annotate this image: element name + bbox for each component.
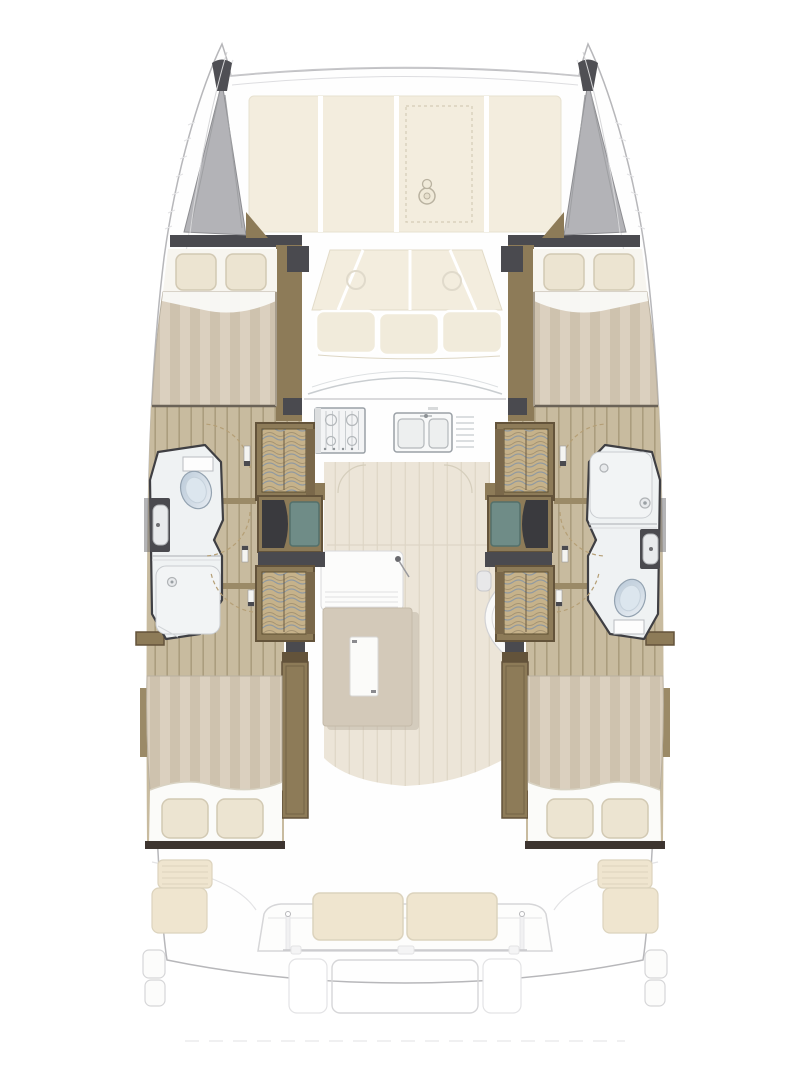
- forward-cockpit-sofa: [312, 250, 502, 359]
- sofa-cushion-2: [379, 313, 439, 355]
- bench-leg-port: [286, 916, 290, 950]
- hull-trim: [140, 688, 147, 757]
- wardrobe-side-panel: [306, 572, 315, 634]
- sofa-cushion-3: [442, 311, 502, 353]
- swim-platform-port: [289, 959, 327, 1013]
- nav-counter: [321, 551, 409, 611]
- rail-latch: [398, 946, 414, 954]
- pillow: [176, 254, 216, 290]
- hull-steps: [258, 552, 325, 567]
- shower-head-center: [643, 501, 647, 505]
- rail-bracket-starboard: [509, 946, 519, 954]
- saloon-table: [323, 608, 419, 730]
- aft-bench-cushion-left: [313, 893, 403, 940]
- sunpad-divider-1: [318, 96, 323, 232]
- companionway-step: [287, 246, 309, 272]
- bench-pin-starboard: [520, 912, 525, 917]
- aft-bulkhead: [145, 841, 285, 849]
- pillow: [226, 254, 266, 290]
- swim-platform-starboard: [483, 959, 521, 1013]
- catamaran-floor-plan-page: [0, 0, 810, 1080]
- wardrobe-cap: [282, 652, 308, 662]
- catamaran-floor-plan: [0, 0, 810, 1080]
- double-bed-duvet: [147, 676, 282, 790]
- companionway-step-lower: [283, 398, 302, 415]
- stair-post: [477, 571, 491, 591]
- sunpad-divider-2: [394, 96, 399, 232]
- aft-bench-frame: [258, 904, 552, 951]
- starboard-transom-steps: [645, 950, 667, 1006]
- port-transom-steps: [143, 950, 165, 1006]
- rail-bracket-port: [291, 946, 301, 954]
- port-helm-seat: [152, 860, 212, 933]
- side-shelf: [136, 632, 164, 645]
- galley: [302, 396, 508, 462]
- toilet-cistern: [183, 457, 213, 471]
- drain-center: [171, 581, 174, 584]
- aft-bench-cushion-right: [407, 893, 497, 940]
- starboard-forward-cabin: [501, 235, 658, 421]
- starboard-head: [587, 445, 666, 639]
- seat-cushion-teal: [290, 502, 319, 546]
- saloon: [321, 462, 506, 786]
- toilet-cistern: [614, 620, 644, 634]
- wardrobe-side-panel: [306, 429, 315, 497]
- shower-tray: [156, 566, 220, 634]
- faucet: [649, 547, 653, 551]
- port-head: [144, 445, 223, 639]
- shower-drain-icon: [600, 464, 608, 472]
- pillow: [162, 799, 208, 838]
- port-forward-cabin: [152, 235, 309, 421]
- vanity-unit: [262, 500, 288, 548]
- stove-icon: [315, 408, 365, 453]
- sofa-cushion-1: [316, 311, 376, 353]
- table-tray: [350, 637, 378, 696]
- tray-handle-1: [352, 640, 357, 643]
- seat-cushion: [152, 888, 207, 933]
- counter-fitting: [395, 556, 401, 562]
- sunpad-panel-area: [249, 96, 561, 232]
- bench-leg-starboard: [520, 916, 524, 950]
- sunpad-divider-3: [484, 96, 489, 232]
- pillow: [217, 799, 263, 838]
- bathroom-sink-icon: [153, 505, 168, 545]
- faucet: [156, 523, 160, 527]
- starboard-helm-seat: [598, 860, 658, 933]
- bench-pin-port: [286, 912, 291, 917]
- tray-handle-2: [371, 690, 376, 693]
